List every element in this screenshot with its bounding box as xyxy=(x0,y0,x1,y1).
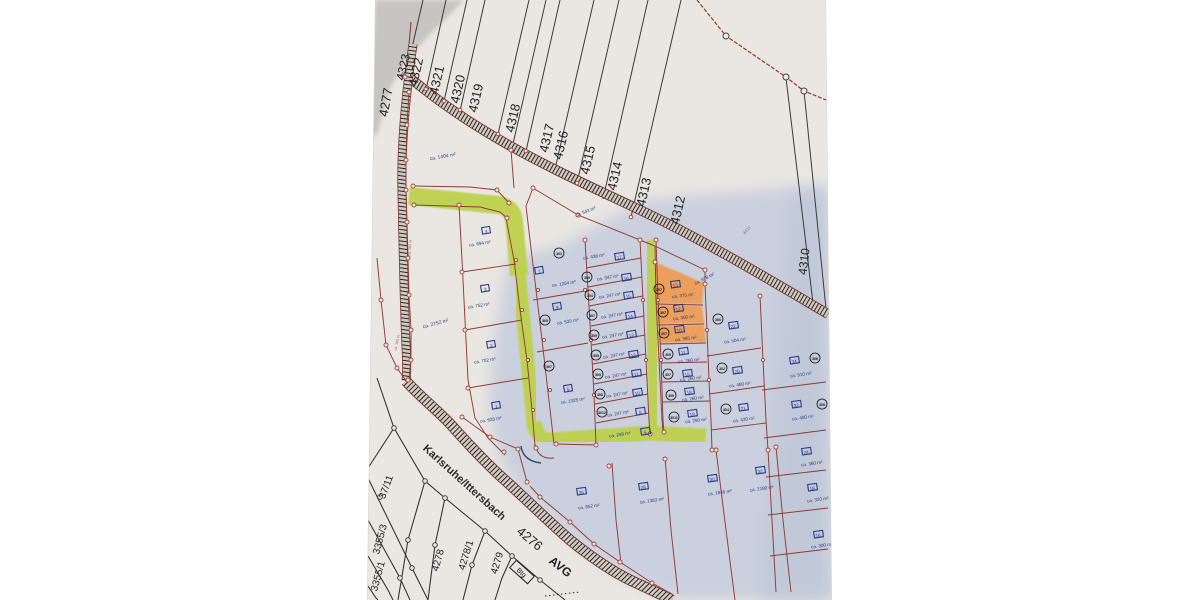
svg-text:3011: 3011 xyxy=(670,416,678,420)
svg-text:309: 309 xyxy=(668,394,674,398)
svg-text:307: 307 xyxy=(660,311,666,315)
svg-text:306: 306 xyxy=(812,357,818,361)
svg-text:303: 303 xyxy=(556,252,562,256)
svg-text:305: 305 xyxy=(542,319,548,323)
svg-text:307: 307 xyxy=(546,365,552,369)
svg-text:309: 309 xyxy=(591,334,597,338)
svg-text:308: 308 xyxy=(597,393,603,397)
svg-text:309: 309 xyxy=(584,276,590,280)
svg-text:305: 305 xyxy=(665,353,671,357)
svg-text:307: 307 xyxy=(656,288,662,292)
svg-text:308: 308 xyxy=(819,403,825,407)
svg-text:3012: 3012 xyxy=(598,411,606,415)
svg-text:307: 307 xyxy=(589,314,595,318)
svg-text:303: 303 xyxy=(587,294,593,298)
svg-text:300: 300 xyxy=(715,318,721,322)
svg-text:304: 304 xyxy=(723,408,729,412)
svg-text:309: 309 xyxy=(595,373,601,377)
svg-text:305: 305 xyxy=(593,354,599,358)
svg-text:307: 307 xyxy=(661,332,667,336)
svg-text:307: 307 xyxy=(665,373,671,377)
svg-text:302: 302 xyxy=(719,367,725,371)
